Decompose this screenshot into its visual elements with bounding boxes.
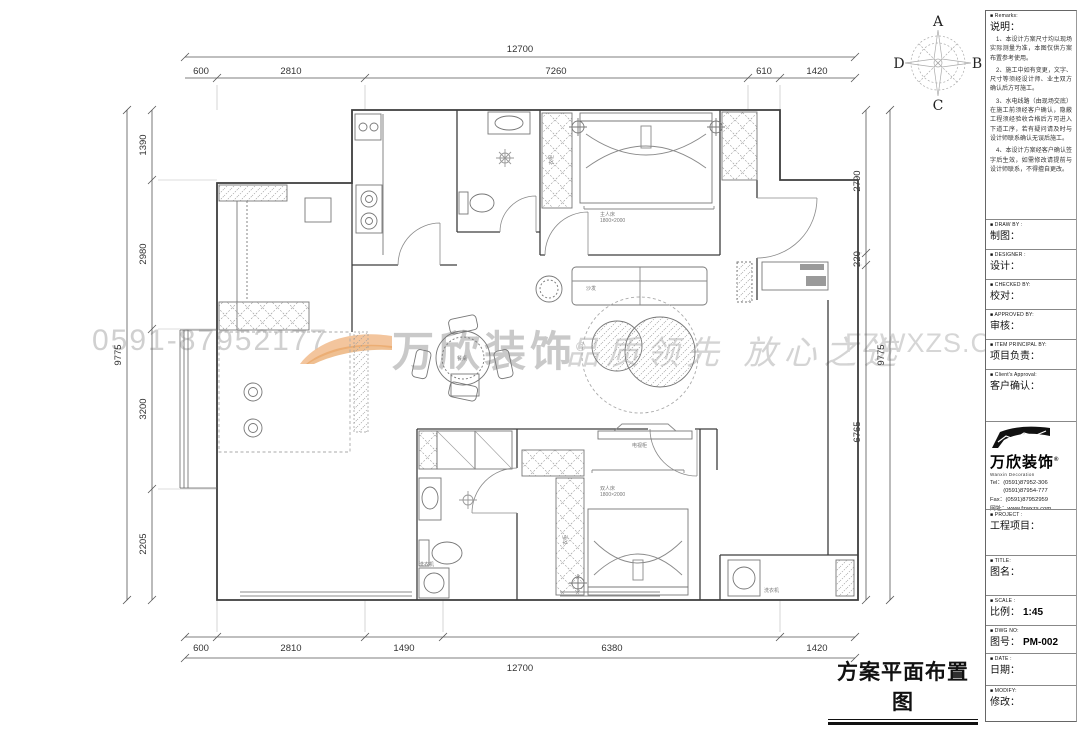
dwg-no-value: PM-002 (1023, 637, 1058, 648)
title-underline-thick (828, 722, 978, 725)
wardrobe3-top (522, 450, 584, 476)
walls (217, 110, 858, 600)
washbasin (488, 112, 530, 134)
svg-text:洗衣机: 洗衣机 (419, 561, 434, 568)
balcony-zone (219, 332, 350, 452)
svg-text:600: 600 (193, 643, 209, 654)
plant (536, 276, 562, 302)
svg-text:2810: 2810 (280, 66, 301, 77)
master-bedroom (542, 112, 757, 209)
scale-value: 1:45 (1023, 607, 1043, 618)
toilet-bowl (470, 194, 494, 212)
field-scale: ■ SCALE : 比例：1:45 (986, 595, 1076, 625)
svg-text:洗衣机: 洗衣机 (764, 587, 779, 594)
washing-machine (419, 568, 449, 598)
double-bed (588, 509, 688, 587)
wardrobe-left (219, 302, 309, 330)
kitchen (355, 114, 383, 255)
compass-e: B (972, 56, 982, 72)
bedroom3-door (650, 429, 697, 476)
compass-w: D (893, 56, 904, 72)
tv (614, 424, 676, 431)
svg-text:1390: 1390 (138, 134, 149, 155)
svg-text:1800×2000: 1800×2000 (600, 492, 625, 498)
field-client-approval: ■ Client's Approval: 客户确认： (986, 369, 1076, 421)
svg-text:电视柜: 电视柜 (632, 442, 647, 449)
drawing-title-text: 方案平面布置图 (828, 656, 978, 716)
toilet2-bowl (432, 542, 462, 564)
field-draw-by: ■ DRAW BY : 制图： (986, 219, 1076, 249)
svg-text:衣柜: 衣柜 (562, 535, 569, 545)
svg-text:1420: 1420 (806, 643, 827, 654)
balcony (728, 560, 854, 596)
bed2-headboard (588, 587, 688, 595)
svg-text:2810: 2810 (280, 643, 301, 654)
dim-bottom-total: 12700 (507, 663, 533, 674)
field-checked-by: ■ CHECKED BY: 校对： (986, 279, 1076, 309)
ceiling-light2 (459, 491, 477, 509)
company-name-en: Wanxin Decoration (990, 472, 1072, 477)
company-name: 万欣装饰® (990, 455, 1072, 472)
field-title: ■ TITLE: 图名： (986, 555, 1076, 595)
bedroom2-bath (419, 431, 512, 598)
svg-text:610: 610 (756, 66, 772, 77)
remarks-section: ■ Remarks: 说明： 1、本设计方案尺寸均以现场实际测量为准，本图仅供方… (986, 11, 1076, 219)
drawing-sheet: 0591-87952177 万欣装饰® 品质领先 放心之选 FZWXZS.COM (0, 0, 1080, 732)
toilet-tank (459, 192, 468, 214)
remarks-label-zh: 说明： (990, 21, 1072, 34)
bed-headboard (580, 113, 712, 121)
living-room (572, 262, 828, 439)
svg-text:双人床: 双人床 (600, 485, 615, 492)
remarks-label-en: ■ Remarks: (990, 13, 1072, 20)
title-block-panel: ■ Remarks: 说明： 1、本设计方案尺寸均以现场实际测量为准，本图仅供方… (985, 10, 1077, 722)
bedroom3 (522, 450, 688, 595)
floor-plan: 12700 600 2810 7260 610 1420 600 2810 14… (0, 0, 1080, 732)
svg-text:2980: 2980 (138, 243, 149, 264)
hall-screen (354, 332, 368, 432)
svg-text:餐桌: 餐桌 (457, 355, 467, 362)
company-logo (990, 424, 1052, 450)
kitchen-stove (356, 185, 382, 233)
bedroom2-bath-door (472, 468, 517, 513)
bath-door (500, 196, 536, 232)
field-project: ■ PROJECT : 工程项目： (986, 509, 1076, 555)
svg-text:1490: 1490 (393, 643, 414, 654)
drawing-title: 方案平面布置图 (828, 656, 978, 725)
svg-text:主人床: 主人床 (600, 211, 615, 218)
compass-s: C (933, 98, 944, 114)
svg-text:3200: 3200 (138, 398, 149, 419)
remarks-text: 1、本设计方案尺寸均以现场实际测量为准，本图仅供方案布置参考使用。 2、施工中如… (990, 36, 1072, 175)
field-date: ■ DATE : 日期： (986, 653, 1076, 685)
svg-text:7260: 7260 (545, 66, 566, 77)
field-modify: ■ MODIFY: 修改： (986, 685, 1076, 721)
field-designer: ■ DESIGNER : 设计： (986, 249, 1076, 279)
svg-text:2205: 2205 (138, 533, 149, 554)
tv-cabinet (598, 431, 692, 439)
cabinet-top (219, 185, 287, 201)
dimension-text: 12700 600 2810 7260 610 1420 600 2810 14… (113, 44, 887, 674)
field-dwg-no: ■ DWG NO: 图号：PM-002 (986, 625, 1076, 653)
entry-door (757, 198, 817, 258)
side-table (305, 198, 331, 222)
svg-text:6380: 6380 (601, 643, 622, 654)
svg-text:600: 600 (193, 66, 209, 77)
field-item-principal: ■ ITEM PRINCIPAL BY: 项目负责： (986, 339, 1076, 369)
dim-left-total: 9775 (113, 344, 124, 365)
wardrobe-master (542, 113, 572, 208)
master-bedroom-door (545, 212, 588, 255)
company-logo-block: 万欣装饰® Wanxin Decoration Tel：(0591)87952-… (986, 421, 1076, 509)
svg-text:衣柜: 衣柜 (548, 155, 555, 165)
title-underline-thin (828, 719, 978, 720)
kitchen-door (398, 223, 440, 265)
svg-text:1800×2000: 1800×2000 (600, 218, 625, 224)
svg-text:1420: 1420 (806, 66, 827, 77)
compass: A B C D (893, 14, 982, 114)
bathroom-top (459, 112, 530, 214)
side-screen (737, 262, 752, 302)
left-room (219, 185, 350, 452)
coffee-table-large (625, 317, 695, 387)
master-bed (580, 121, 712, 203)
dining-area (411, 276, 562, 402)
dim-right-total: 9775 (876, 344, 887, 365)
closet-entry (722, 112, 757, 180)
compass-n: A (932, 14, 944, 30)
floor-planter (244, 383, 262, 437)
plan-labels: 主人床 1800×2000 双人床 1800×2000 餐桌 沙发 衣柜 衣柜 … (419, 155, 779, 594)
dimension-chains (123, 53, 894, 662)
dim-top-total: 12700 (507, 44, 533, 55)
ceiling-light (496, 149, 514, 167)
svg-text:沙发: 沙发 (586, 285, 596, 292)
field-approved-by: ■ APPROVED BY: 审核： (986, 309, 1076, 339)
